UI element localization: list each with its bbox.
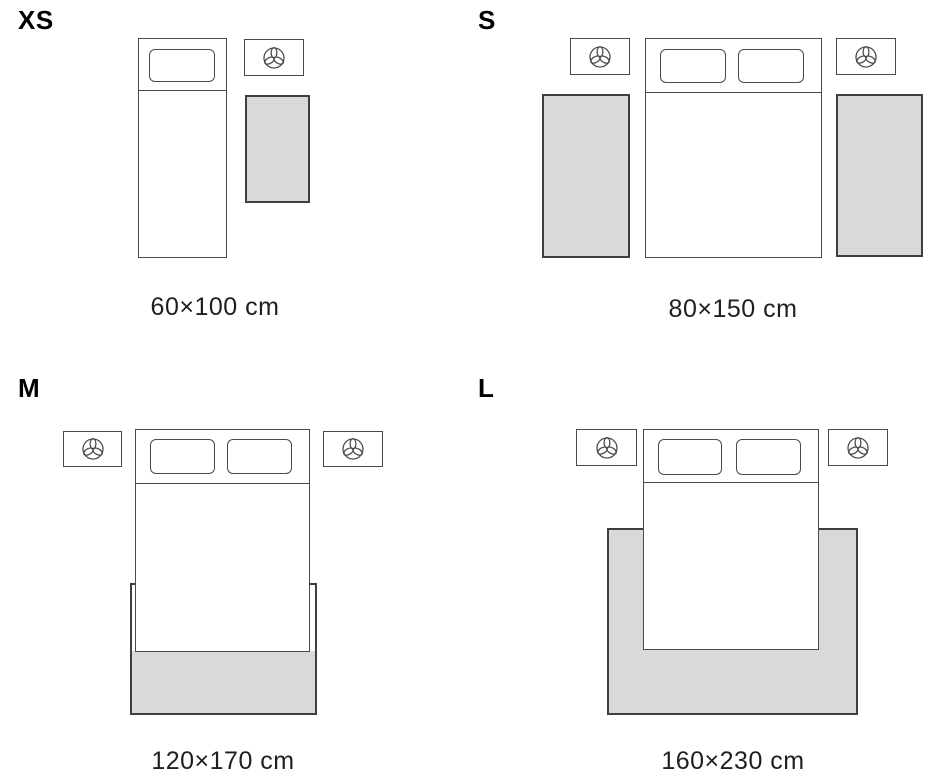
plant-icon [842,432,874,464]
nightstand [323,431,383,467]
pillow [150,439,215,474]
rug-s-left [542,94,630,258]
plant-icon [584,41,616,73]
size-label-s: S [478,6,496,35]
nightstand [576,429,637,466]
nightstand [570,38,630,75]
bed-headboard [139,39,226,91]
pillow [660,49,726,83]
pillow [658,439,722,475]
double-bed [135,429,310,652]
nightstand [836,38,896,75]
size-caption-m: 120×170 cm [83,746,363,776]
double-bed [643,429,819,650]
bed-headboard [646,39,821,93]
plant-icon [591,432,623,464]
size-caption-s: 80×150 cm [593,294,873,324]
pillow [736,439,801,475]
bed-headboard [136,430,309,484]
bed-headboard [644,430,818,483]
size-label-xs: XS [18,6,54,35]
pillow [738,49,804,83]
rug-s-right [836,94,923,257]
size-label-l: L [478,374,494,403]
plant-icon [258,42,290,74]
pillow [227,439,292,474]
size-caption-xs: 60×100 cm [75,292,355,322]
plant-icon [850,41,882,73]
rug-size-guide: XS 60×100 cm S [0,0,940,780]
size-label-m: M [18,374,40,403]
rug-visible-area [132,651,315,713]
pillow [149,49,215,82]
plant-icon [337,433,369,465]
nightstand [244,39,304,76]
size-caption-l: 160×230 cm [593,746,873,776]
double-bed [645,38,822,258]
rug-xs [245,95,310,203]
nightstand [828,429,888,466]
nightstand [63,431,122,467]
single-bed [138,38,227,258]
plant-icon [77,433,109,465]
